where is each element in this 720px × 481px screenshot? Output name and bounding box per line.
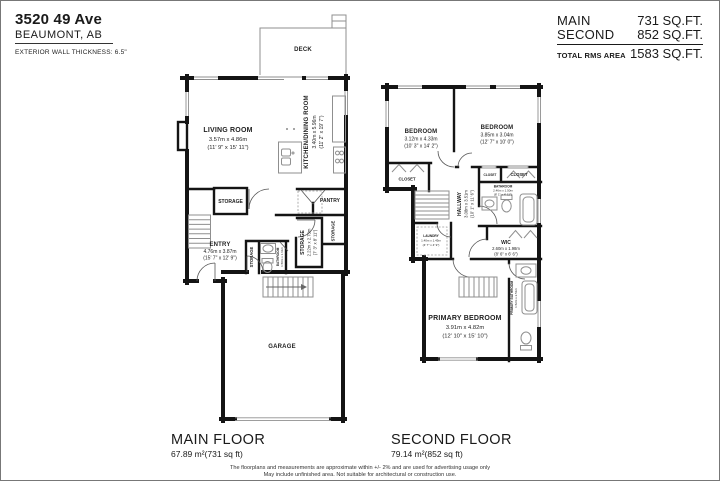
room-dims-kitchen-ft: (11' 2" x 19' 7") <box>319 115 325 148</box>
room-label-hallway: HALLWAY <box>457 191 463 216</box>
area-label: MAIN <box>557 14 591 28</box>
room-label-living: LIVING ROOM <box>203 127 252 134</box>
room-dims-living-ft: (11' 9" x 15' 11") <box>207 145 248 151</box>
room-label-laundry: LAUNDRY <box>423 234 439 238</box>
second-floor-area: 79.14 m²(852 sq ft) <box>391 449 512 459</box>
main-floor-title: MAIN FLOOR <box>171 432 265 448</box>
room-dims-hallway-ft: (10' 1" x 11' 6") <box>470 190 475 218</box>
area-label: SECOND <box>557 28 614 42</box>
room-dims-living-m: 3.57m x 4.86m <box>209 137 248 143</box>
room-dims-bedroom-right-m: 3.85m x 3.04m <box>480 133 513 139</box>
room-dims-entry-m: 4.76m x 3.87m <box>203 249 236 255</box>
room-label-storage-right: STORAGE <box>331 220 336 241</box>
room-dims-storage-mid-m: 2.22m x 2.73m <box>307 228 312 256</box>
room-dims-primary-bedroom-m: 3.91m x 4.82m <box>446 325 485 331</box>
second-floor-title-block: SECOND FLOOR 79.14 m²(852 sq ft) <box>391 432 512 459</box>
room-dims-primary-bath-m: 1.52m x 2.51m <box>514 288 518 308</box>
room-label-bedroom-right: BEDROOM <box>481 125 514 131</box>
room-label-bedroom-left: BEDROOM <box>405 129 438 135</box>
main-floor-title-block: MAIN FLOOR 67.89 m²(731 sq ft) <box>171 432 265 459</box>
area-value: 1583 SQ.FT. <box>630 47 703 61</box>
room-dims-entry-ft: (15' 7" x 12' 9") <box>203 256 237 262</box>
floorplan-page: 3520 49 Ave BEAUMONT, AB EXTERIOR WALL T… <box>0 0 720 481</box>
room-label-closet-right: CLOSET <box>511 172 528 177</box>
room-dims-hallway-m: 3.08m x 3.51m <box>464 190 469 218</box>
area-value: 852 SQ.FT. <box>637 28 703 42</box>
second-bath-fixtures <box>482 194 537 225</box>
room-dims-laundry-ft: (4' 7" x 4' 9") <box>423 243 440 247</box>
kitchen-island <box>279 128 302 173</box>
area-value: 731 SQ.FT. <box>637 14 703 28</box>
room-dims-laundry-m: 1.40m x 1.45m <box>421 239 441 243</box>
room-dims-bedroom-left-m: 3.12m x 4.33m <box>404 137 437 143</box>
room-label-closet-mid: CLOSET <box>484 173 497 177</box>
primary-bedroom-grid <box>459 277 497 297</box>
address-line1: 3520 49 Ave <box>15 11 127 28</box>
second-stairs <box>415 191 449 219</box>
room-label-primary-bedroom: PRIMARY BEDROOM <box>428 315 501 322</box>
room-dims-main-bath-m: 1.50m x 1.61m <box>280 247 284 267</box>
address-line2: BEAUMONT, AB <box>15 29 113 44</box>
main-bath-fixtures <box>261 244 276 273</box>
second-floor-title: SECOND FLOOR <box>391 432 512 448</box>
primary-bath-fixtures <box>516 264 537 350</box>
basement-stairs <box>263 277 313 297</box>
second-floor-plan: BEDROOM 3.12m x 4.33m (10' 3" x 14' 2") … <box>383 84 542 361</box>
room-dims-bedroom-right-ft: (12' 7" x 10' 0") <box>480 140 514 146</box>
room-dims-bedroom-left-ft: (10' 3" x 14' 2") <box>404 144 438 150</box>
area-row-main: MAIN 731 SQ.FT. <box>557 14 703 28</box>
room-label-garage: GARAGE <box>268 344 296 350</box>
disclaimer-line2: May include unfinished area. Not suitabl… <box>1 472 719 479</box>
main-floor-area: 67.89 m²(731 sq ft) <box>171 449 265 459</box>
room-label-kitchen: KITCHEN/DINING ROOM <box>304 95 310 168</box>
area-label: TOTAL RMS AREA <box>557 49 626 63</box>
main-floor-plan: DECK LIVING ROOM 3.57m x 4.86m (11' 9" x… <box>178 15 349 421</box>
room-label-storage-top: STORAGE <box>218 199 243 205</box>
area-row-total: TOTAL RMS AREA 1583 SQ.FT. <box>557 44 703 63</box>
room-label-storage-closet: STORAGE <box>249 246 254 267</box>
room-dims-wic-m: 2.60m x 1.98m <box>492 246 520 251</box>
disclaimer-line1: The floorplans and measurements are appr… <box>1 465 719 472</box>
room-label-deck: DECK <box>294 47 312 53</box>
room-dims-second-bath-ft: (8' 1" x 4' 11") <box>494 193 512 197</box>
area-row-second: SECOND 852 SQ.FT. <box>557 28 703 42</box>
room-label-entry: ENTRY <box>209 242 230 248</box>
room-dims-primary-bedroom-ft: (12' 10" x 15' 10") <box>442 334 487 340</box>
room-label-pantry: PANTRY <box>320 198 341 204</box>
cooktop-icon <box>334 147 346 173</box>
main-stairs <box>189 215 211 248</box>
disclaimer: The floorplans and measurements are appr… <box>1 465 719 479</box>
wall-thickness-note: EXTERIOR WALL THICKNESS: 6.5" <box>15 49 127 56</box>
room-dims-wic-ft: (8' 6" x 6' 6") <box>494 252 518 257</box>
room-label-storage-mid: STORAGE <box>300 230 306 255</box>
header-area-summary: MAIN 731 SQ.FT. SECOND 852 SQ.FT. TOTAL … <box>557 14 703 63</box>
header-address: 3520 49 Ave BEAUMONT, AB EXTERIOR WALL T… <box>15 11 127 56</box>
living-nook <box>178 122 190 150</box>
room-dims-storage-mid-ft: (7' 3" x 8' 11") <box>313 229 318 255</box>
room-dims-kitchen-m: 3.40m x 5.96m <box>312 115 318 148</box>
room-label-closet-left: CLOSET <box>399 177 416 182</box>
floorplan-drawing: DECK LIVING ROOM 3.57m x 4.86m (11' 9" x… <box>1 1 719 480</box>
